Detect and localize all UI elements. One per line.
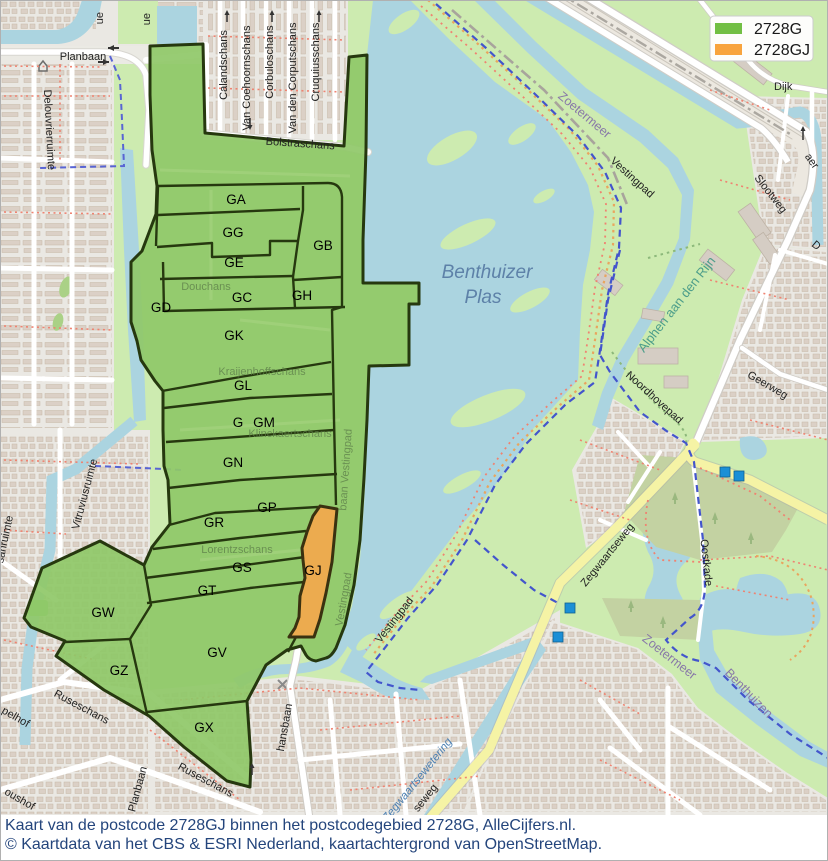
svg-text:ue: ue [94,12,106,24]
svg-text:GC: GC [232,290,253,305]
svg-text:GN: GN [223,455,243,470]
svg-text:GE: GE [224,255,244,270]
svg-text:Calandschans: Calandschans [218,30,230,100]
svg-text:ue: ue [141,13,153,25]
svg-text:GS: GS [232,560,252,575]
svg-text:GL: GL [234,378,253,393]
svg-text:Lorentzschans: Lorentzschans [201,544,273,556]
svg-text:Dijk: Dijk [774,81,793,93]
svg-text:GV: GV [207,645,227,660]
svg-text:GA: GA [226,192,246,207]
svg-text:© Kaartdata van het CBS & ESRI: © Kaartdata van het CBS & ESRI Nederland… [5,836,602,853]
svg-text:GG: GG [222,225,243,240]
svg-text:Kaart van de postcode 2728GJ b: Kaart van de postcode 2728GJ binnen het … [5,817,576,834]
svg-text:GB: GB [313,238,333,253]
svg-text:Van den Corputschans: Van den Corputschans [287,22,299,134]
svg-text:Plas: Plas [465,287,502,308]
svg-text:Cruquiusschans: Cruquiusschans [310,22,322,101]
svg-text:Corbuloschans: Corbuloschans [264,25,276,99]
svg-text:Klinckaertschans: Klinckaertschans [248,428,332,440]
svg-text:GP: GP [257,500,277,515]
svg-text:2728GJ: 2728GJ [754,42,810,59]
svg-text:Kraijenhoffschans: Kraijenhoffschans [218,366,306,378]
svg-text:GR: GR [204,515,225,530]
svg-text:GZ: GZ [110,663,129,678]
svg-text:Douchans: Douchans [181,281,231,293]
svg-text:GJ: GJ [304,563,321,578]
svg-text:Benthuizer: Benthuizer [442,262,534,283]
svg-text:GD: GD [151,300,172,315]
svg-text:GX: GX [194,720,214,735]
svg-text:GK: GK [224,328,244,343]
svg-text:Van Coehoornschans: Van Coehoornschans [241,25,253,130]
svg-text:GT: GT [198,583,217,598]
svg-text:GW: GW [91,605,115,620]
svg-text:2728G: 2728G [754,21,802,38]
svg-text:GH: GH [292,288,312,303]
svg-text:G: G [233,415,244,430]
